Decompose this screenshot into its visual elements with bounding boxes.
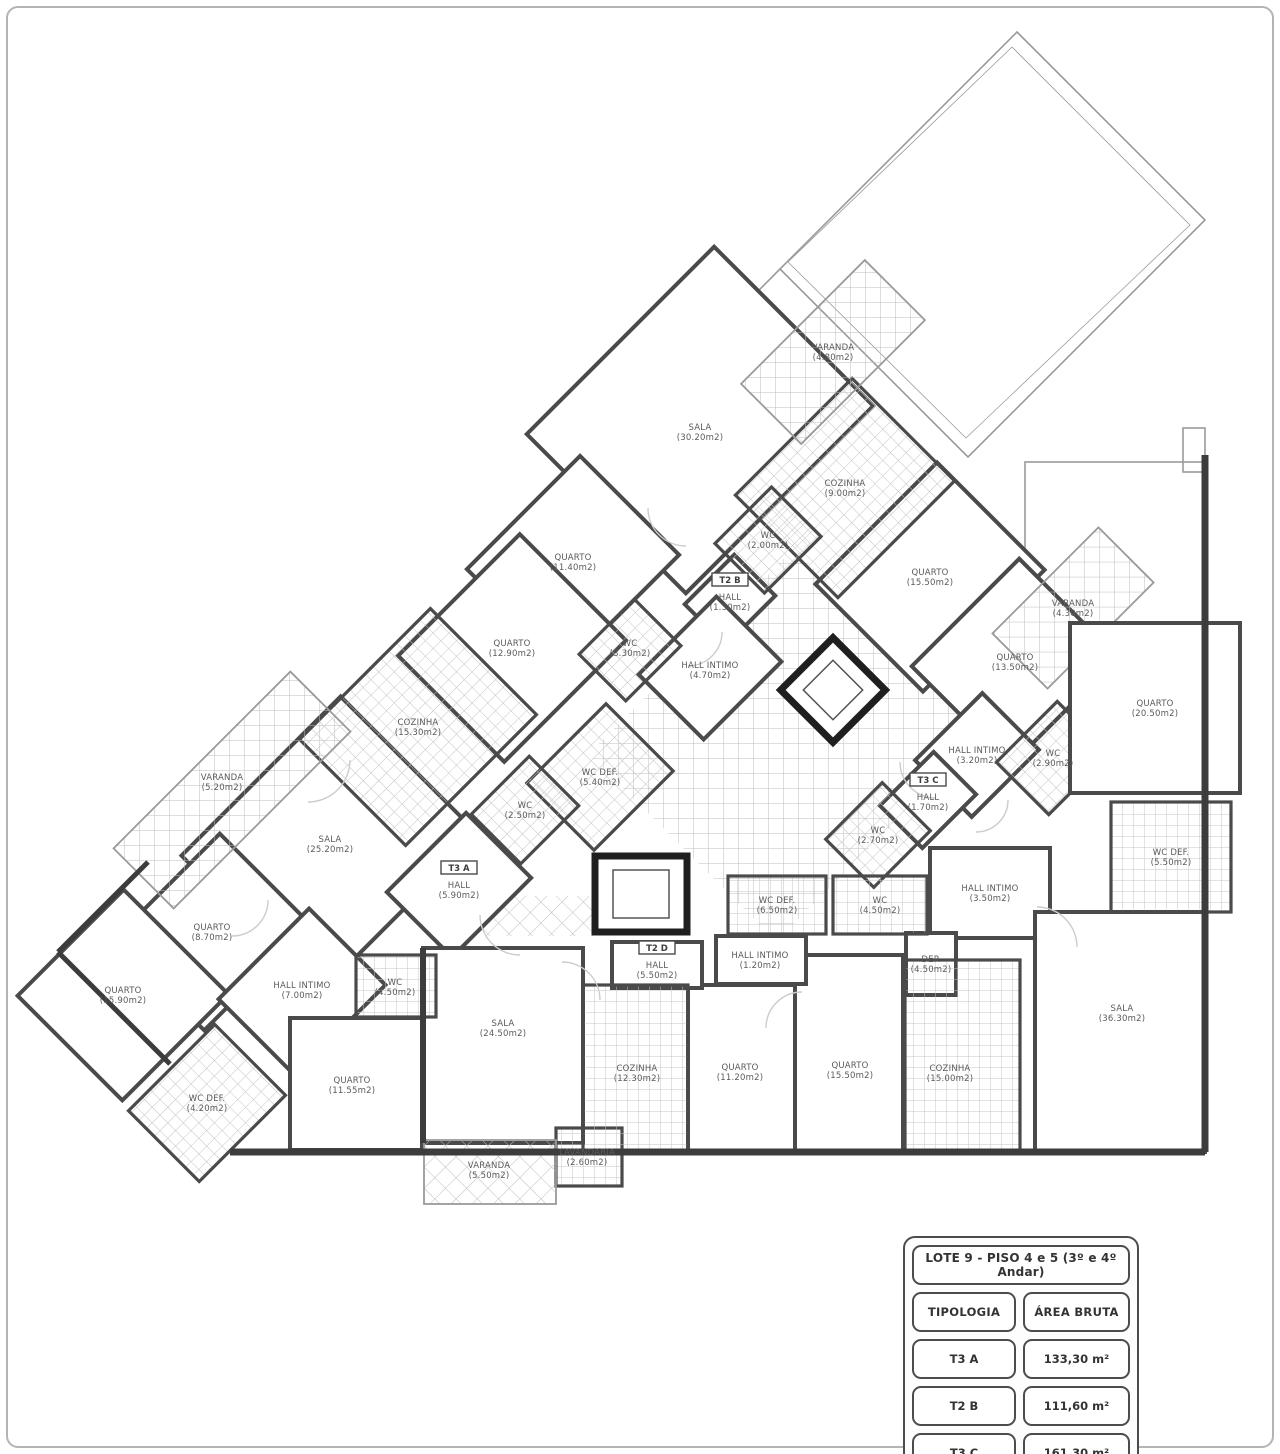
floor-plan-page: VARANDA(5.20m2)SALA(25.20m2)QUARTO(8.70m… — [0, 0, 1280, 1454]
legend-col-area: ÁREA BRUTA — [1023, 1292, 1130, 1332]
room-label: COZINHA(12.30m2) — [614, 1064, 660, 1084]
room-label: WC DEF.(6.50m2) — [757, 896, 798, 916]
room-label: QUARTO(15.50m2) — [827, 1061, 873, 1081]
legend-area-cell: 133,30 m² — [1023, 1339, 1130, 1379]
unit-tag-label: T2 D — [646, 944, 668, 954]
room-label: QUARTO(13.50m2) — [992, 653, 1038, 673]
unit-tag-label: T3 A — [448, 864, 470, 874]
room-label: HALL INTIMO(7.00m2) — [273, 981, 330, 1001]
legend-row: T3 A133,30 m² — [912, 1339, 1130, 1379]
room-label: HALL INTIMO(1.20m2) — [731, 951, 788, 971]
room-label: WC DEF.(4.20m2) — [187, 1094, 228, 1114]
room-label: COZINHA(9.00m2) — [825, 479, 866, 499]
room-label: QUARTO(11.40m2) — [550, 553, 596, 573]
legend-area-cell: 111,60 m² — [1023, 1386, 1130, 1426]
room-label: QUARTO(15.50m2) — [907, 568, 953, 588]
room-label: HALL INTIMO(4.70m2) — [681, 661, 738, 681]
room-label: COZINHA(15.30m2) — [395, 718, 441, 738]
room-label: QUARTO(11.55m2) — [329, 1076, 375, 1096]
room-label: QUARTO(12.90m2) — [489, 639, 535, 659]
room-label: VARANDA(5.50m2) — [468, 1161, 510, 1181]
legend-title: LOTE 9 - PISO 4 e 5 (3º e 4º Andar) — [912, 1245, 1130, 1285]
room-label: COZINHA(15.00m2) — [927, 1064, 973, 1084]
room-label: WC DEF.(5.40m2) — [580, 768, 621, 788]
room-label: LAVANDARIA(2.60m2) — [559, 1148, 615, 1168]
legend-row: T3 C161,30 m² — [912, 1433, 1130, 1454]
legend-typology-cell: T3 A — [912, 1339, 1016, 1379]
legend-area-cell: 161,30 m² — [1023, 1433, 1130, 1454]
legend-typology-cell: T3 C — [912, 1433, 1016, 1454]
legend-rows: T3 A133,30 m²T2 B111,60 m²T3 C161,30 m²T… — [912, 1339, 1130, 1454]
room-label: HALL INTIMO(3.50m2) — [961, 884, 1018, 904]
room-label: QUARTO(8.70m2) — [192, 923, 233, 943]
room-label: HALL INTIMO(3.20m2) — [948, 746, 1005, 766]
room-label: VARANDA(4.30m2) — [1052, 599, 1094, 619]
room-label: VARANDA(4.80m2) — [812, 343, 854, 363]
room-label: QUARTO(11.20m2) — [717, 1063, 763, 1083]
legend-col-typology: TIPOLOGIA — [912, 1292, 1016, 1332]
unit-tag-label: T3 C — [918, 776, 939, 786]
room-label: WC DEF.(5.50m2) — [1151, 848, 1192, 868]
legend-table: LOTE 9 - PISO 4 e 5 (3º e 4º Andar) TIPO… — [903, 1236, 1139, 1454]
room-label: QUARTO(20.50m2) — [1132, 699, 1178, 719]
legend-typology-cell: T2 B — [912, 1386, 1016, 1426]
room-label: QUARTO(15.90m2) — [100, 986, 146, 1006]
unit-tag-label: T2 B — [719, 576, 740, 586]
room-label: VARANDA(5.20m2) — [201, 773, 243, 793]
legend-header-row: TIPOLOGIA ÁREA BRUTA — [912, 1292, 1130, 1332]
legend-row: T2 B111,60 m² — [912, 1386, 1130, 1426]
